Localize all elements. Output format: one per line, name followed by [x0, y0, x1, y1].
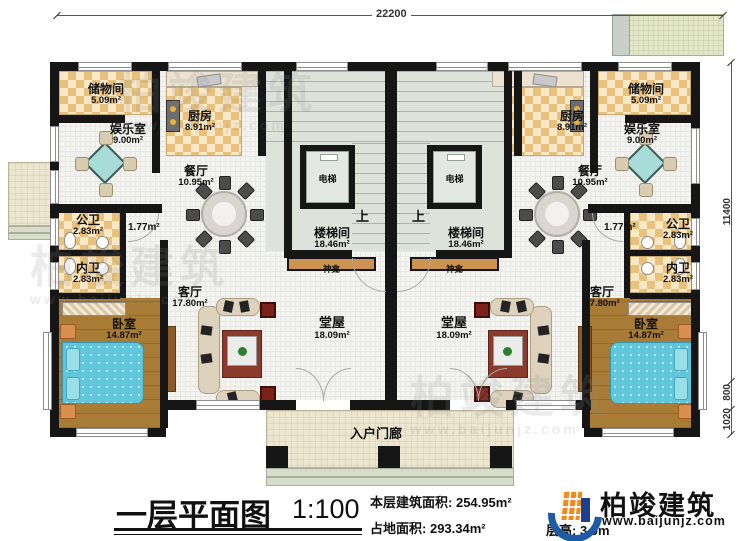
chair — [519, 209, 533, 221]
round-table — [534, 191, 580, 237]
stat-label: 本层建筑面积: — [370, 495, 452, 510]
chair — [99, 183, 113, 197]
room-label-hall-left: 堂屋18.09m² — [294, 316, 370, 341]
room-label-public-bath-left: 公卫2.83m² — [60, 214, 116, 238]
shrine-label: 神龛 — [323, 264, 340, 274]
side-porch-steps-1 — [8, 226, 51, 233]
room-label-private-bath-left: 内卫2.83m² — [60, 262, 116, 286]
company-logo: 柏竣建筑 www.baijunjz.com — [548, 486, 748, 536]
elevator-label-left: 电梯 — [307, 174, 348, 184]
wall — [588, 204, 700, 213]
pillow — [66, 377, 80, 400]
side-table — [260, 302, 276, 318]
cushion — [200, 325, 212, 335]
wall — [120, 212, 126, 298]
wardrobe — [62, 302, 126, 316]
side-porch-steps-2 — [8, 233, 51, 240]
stair-flight-right — [397, 143, 430, 250]
sink-icon — [532, 73, 557, 87]
wall — [630, 293, 695, 299]
title-underline-thin — [114, 534, 362, 535]
elevator-door — [447, 154, 465, 161]
room-label-storage-left: 储物间5.09m² — [68, 83, 144, 107]
room-label-private-bath-right: 内卫2.83m² — [652, 262, 704, 286]
stat-label: 占地面积: — [370, 521, 426, 536]
dim-top-width: 22200 — [372, 8, 411, 20]
side-porch-left — [8, 162, 51, 226]
chair — [123, 157, 137, 171]
title-underline — [114, 528, 362, 531]
room-label-hall-right: 堂屋18.09m² — [416, 316, 492, 341]
pillow — [674, 377, 688, 400]
room-label-bedroom-left: 卧室14.87m² — [90, 318, 158, 342]
nightstand — [60, 324, 76, 339]
bay-window — [698, 332, 707, 410]
pillow — [66, 348, 80, 371]
porch-column-right — [490, 446, 512, 468]
sofa-set-left — [196, 296, 278, 410]
chair — [663, 157, 677, 171]
wardrobe — [628, 302, 692, 316]
window — [296, 62, 348, 71]
wall — [514, 62, 522, 156]
cushion — [500, 300, 511, 312]
wall-party — [385, 62, 397, 410]
chair — [186, 209, 200, 221]
shrine-label: 神龛 — [446, 264, 463, 274]
window — [50, 126, 59, 162]
dim-right-height: 11400 — [722, 198, 733, 225]
porch-column-left — [266, 446, 288, 468]
entry-steps-1 — [266, 468, 514, 477]
nightstand — [60, 404, 76, 419]
window — [50, 262, 59, 290]
chair — [219, 240, 231, 254]
cushion — [537, 353, 549, 363]
elevator-label-right: 电梯 — [434, 174, 475, 184]
wall — [630, 250, 695, 256]
plant — [238, 347, 247, 356]
bed — [610, 342, 692, 404]
window — [436, 62, 488, 71]
window — [78, 62, 132, 71]
room-label-living-right: 客厅17.80m² — [570, 286, 634, 310]
sofa — [530, 306, 552, 394]
window — [516, 400, 576, 410]
wall — [160, 240, 168, 428]
sofa — [198, 306, 220, 394]
area-label-corridor-left: 1.77m² — [128, 222, 160, 233]
wall — [55, 293, 120, 299]
sofa — [490, 298, 534, 316]
cushion — [200, 353, 212, 363]
stat-floor-area: 本层建筑面积: 254.95m² — [370, 492, 512, 511]
wall — [258, 62, 266, 156]
porch-column-center — [378, 446, 400, 468]
wall — [50, 204, 162, 213]
entry-steps-2 — [266, 477, 514, 486]
logo-building2-icon — [581, 498, 590, 522]
wall — [504, 71, 512, 258]
stat-land-area: 占地面积: 293.34m² — [370, 518, 486, 537]
stat-value: 254.95m² — [456, 495, 512, 510]
window — [196, 400, 260, 410]
window — [168, 62, 242, 71]
wall — [55, 62, 695, 71]
room-label-kitchen-left: 厨房8.91m² — [168, 110, 232, 134]
cushion — [239, 300, 250, 312]
room-label-kitchen-right: 厨房8.91m² — [540, 110, 604, 134]
elevator-cab-right: 电梯 — [433, 151, 476, 203]
bay-window — [43, 332, 52, 410]
room-label-dining-right: 餐厅10.95m² — [558, 165, 622, 189]
game-table-left — [83, 141, 127, 185]
round-table — [201, 191, 247, 237]
room-label-stairwell-right: 楼梯间18.46m² — [432, 227, 500, 251]
stair-up-right: 上 — [412, 206, 425, 225]
wall — [152, 62, 160, 123]
window — [508, 62, 582, 71]
stair-up-left: 上 — [356, 206, 369, 225]
elevator-door — [320, 154, 338, 161]
chair — [75, 157, 89, 171]
sink-icon — [196, 73, 221, 87]
door-opening — [50, 170, 59, 204]
plant — [503, 347, 512, 356]
porch-label: 入户门廊 — [350, 423, 402, 442]
counter-left — [166, 71, 258, 87]
chair — [250, 209, 264, 221]
chair — [639, 183, 653, 197]
sheet-scale: 1:100 — [292, 494, 360, 525]
area-label-corridor-right: 1.77m² — [604, 222, 636, 233]
stair-treads-right-top — [397, 71, 504, 143]
window — [618, 62, 672, 71]
game-table-right — [623, 141, 667, 185]
room-label-stairwell-left: 楼梯间18.46m² — [298, 227, 366, 251]
pillow — [674, 348, 688, 371]
stat-value: 293.34m² — [430, 521, 486, 536]
wall — [55, 250, 120, 256]
room-label-storage-right: 储物间5.09m² — [608, 83, 684, 107]
logo-building-icon — [559, 490, 582, 520]
room-label-living-left: 客厅17.80m² — [158, 286, 222, 310]
bed — [62, 342, 144, 404]
room-label-bedroom-right: 卧室14.87m² — [612, 318, 680, 342]
window — [691, 128, 700, 184]
room-label-dining-left: 餐厅10.95m² — [164, 165, 228, 189]
dining-table-right — [534, 191, 580, 237]
card-table — [84, 142, 126, 184]
terrace-panel — [612, 14, 630, 56]
wall — [284, 71, 292, 258]
card-table — [624, 142, 666, 184]
dim-right-800: 800 — [722, 384, 733, 401]
wall — [350, 400, 450, 410]
floor-plan-sheet: 电梯 电梯 神龛 神龛 — [0, 0, 750, 541]
elevator-cab-left: 电梯 — [306, 151, 349, 203]
chair — [552, 240, 564, 254]
window — [76, 428, 148, 437]
cushion — [537, 325, 549, 335]
dim-right-1020: 1020 — [722, 408, 733, 430]
window — [602, 428, 674, 437]
window — [50, 218, 59, 246]
logo-website: www.baijunjz.com — [602, 514, 726, 528]
room-label-entertainment-right: 娱乐室9.00m² — [606, 123, 678, 147]
dining-table-left — [201, 191, 247, 237]
room-label-entertainment-left: 娱乐室9.00m² — [92, 123, 164, 147]
room-label-public-bath-right: 公卫2.83m² — [652, 218, 704, 242]
wall — [582, 240, 590, 428]
